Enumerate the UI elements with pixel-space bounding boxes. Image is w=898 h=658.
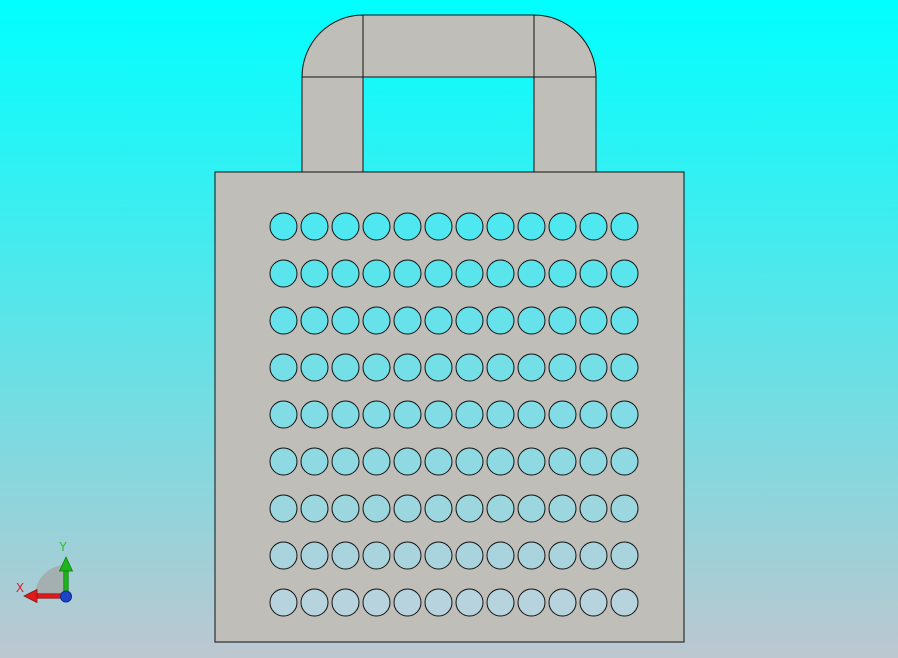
hole[interactable]	[580, 213, 607, 240]
viewport-canvas[interactable]: X Y	[0, 0, 898, 658]
hole[interactable]	[394, 542, 421, 569]
hole[interactable]	[301, 260, 328, 287]
hole[interactable]	[301, 589, 328, 616]
hole[interactable]	[456, 589, 483, 616]
hole[interactable]	[363, 307, 390, 334]
hole[interactable]	[301, 495, 328, 522]
hole[interactable]	[580, 307, 607, 334]
hole[interactable]	[394, 354, 421, 381]
hole[interactable]	[363, 448, 390, 475]
hole[interactable]	[425, 260, 452, 287]
hole[interactable]	[301, 213, 328, 240]
hole[interactable]	[487, 354, 514, 381]
hole[interactable]	[487, 213, 514, 240]
hole[interactable]	[611, 542, 638, 569]
x-axis-arrowhead	[24, 590, 37, 603]
handle-leg-left[interactable]	[302, 77, 363, 172]
hole[interactable]	[487, 401, 514, 428]
hole[interactable]	[518, 354, 545, 381]
hole[interactable]	[580, 448, 607, 475]
hole[interactable]	[611, 495, 638, 522]
handle-top[interactable]	[363, 15, 534, 77]
hole[interactable]	[425, 589, 452, 616]
hole[interactable]	[518, 260, 545, 287]
hole[interactable]	[611, 213, 638, 240]
hole[interactable]	[487, 542, 514, 569]
hole[interactable]	[425, 542, 452, 569]
hole[interactable]	[549, 542, 576, 569]
hole[interactable]	[270, 495, 297, 522]
hole[interactable]	[456, 448, 483, 475]
hole[interactable]	[580, 589, 607, 616]
x-axis-label: X	[16, 581, 24, 595]
hole[interactable]	[270, 260, 297, 287]
hole[interactable]	[332, 354, 359, 381]
hole[interactable]	[549, 495, 576, 522]
hole[interactable]	[518, 401, 545, 428]
hole[interactable]	[332, 213, 359, 240]
hole[interactable]	[425, 307, 452, 334]
hole[interactable]	[301, 448, 328, 475]
hole[interactable]	[301, 307, 328, 334]
hole[interactable]	[332, 401, 359, 428]
hole[interactable]	[363, 401, 390, 428]
hole[interactable]	[270, 589, 297, 616]
hole[interactable]	[270, 354, 297, 381]
hole[interactable]	[425, 448, 452, 475]
hole[interactable]	[332, 260, 359, 287]
hole[interactable]	[549, 260, 576, 287]
hole[interactable]	[270, 401, 297, 428]
hole[interactable]	[363, 260, 390, 287]
hole[interactable]	[425, 495, 452, 522]
hole[interactable]	[487, 495, 514, 522]
hole[interactable]	[425, 354, 452, 381]
hole[interactable]	[456, 495, 483, 522]
hole[interactable]	[456, 260, 483, 287]
hole[interactable]	[363, 213, 390, 240]
hole[interactable]	[549, 354, 576, 381]
hole[interactable]	[394, 401, 421, 428]
hole[interactable]	[611, 589, 638, 616]
handle-leg-right[interactable]	[534, 77, 596, 172]
hole[interactable]	[456, 213, 483, 240]
hole[interactable]	[549, 401, 576, 428]
hole[interactable]	[456, 542, 483, 569]
hole[interactable]	[270, 213, 297, 240]
hole[interactable]	[611, 448, 638, 475]
hole[interactable]	[487, 589, 514, 616]
hole[interactable]	[394, 589, 421, 616]
hole[interactable]	[270, 307, 297, 334]
origin-point	[61, 591, 72, 602]
hole[interactable]	[518, 589, 545, 616]
hole[interactable]	[580, 260, 607, 287]
handle-corner-left[interactable]	[302, 15, 363, 77]
hole[interactable]	[456, 354, 483, 381]
origin-triad: X Y	[16, 540, 73, 603]
hole[interactable]	[332, 495, 359, 522]
hole[interactable]	[518, 495, 545, 522]
hole[interactable]	[394, 213, 421, 240]
hole[interactable]	[518, 213, 545, 240]
hole[interactable]	[363, 542, 390, 569]
hole[interactable]	[394, 307, 421, 334]
hole[interactable]	[332, 589, 359, 616]
hole[interactable]	[518, 307, 545, 334]
hole[interactable]	[487, 260, 514, 287]
hole[interactable]	[332, 307, 359, 334]
y-axis-arrowhead	[60, 557, 73, 571]
hole[interactable]	[518, 448, 545, 475]
hole[interactable]	[363, 354, 390, 381]
hole[interactable]	[549, 307, 576, 334]
hole[interactable]	[487, 307, 514, 334]
hole[interactable]	[425, 401, 452, 428]
hole[interactable]	[332, 542, 359, 569]
hole[interactable]	[580, 495, 607, 522]
hole[interactable]	[363, 495, 390, 522]
hole[interactable]	[611, 260, 638, 287]
hole[interactable]	[580, 354, 607, 381]
hole[interactable]	[549, 589, 576, 616]
hole[interactable]	[487, 448, 514, 475]
cad-viewport[interactable]: X Y	[0, 0, 898, 658]
hole[interactable]	[394, 260, 421, 287]
hole[interactable]	[270, 448, 297, 475]
hole[interactable]	[611, 401, 638, 428]
hole[interactable]	[332, 448, 359, 475]
hole[interactable]	[456, 401, 483, 428]
hole[interactable]	[549, 448, 576, 475]
hole[interactable]	[425, 213, 452, 240]
hole[interactable]	[611, 307, 638, 334]
hole[interactable]	[394, 495, 421, 522]
hole[interactable]	[580, 401, 607, 428]
hole[interactable]	[456, 307, 483, 334]
hole[interactable]	[394, 448, 421, 475]
hole[interactable]	[518, 542, 545, 569]
hole[interactable]	[611, 354, 638, 381]
y-axis-label: Y	[58, 540, 67, 554]
hole[interactable]	[270, 542, 297, 569]
hole[interactable]	[301, 542, 328, 569]
hole[interactable]	[549, 213, 576, 240]
hole[interactable]	[363, 589, 390, 616]
hole[interactable]	[301, 354, 328, 381]
hole[interactable]	[301, 401, 328, 428]
hole[interactable]	[580, 542, 607, 569]
handle-corner-right[interactable]	[534, 15, 596, 77]
